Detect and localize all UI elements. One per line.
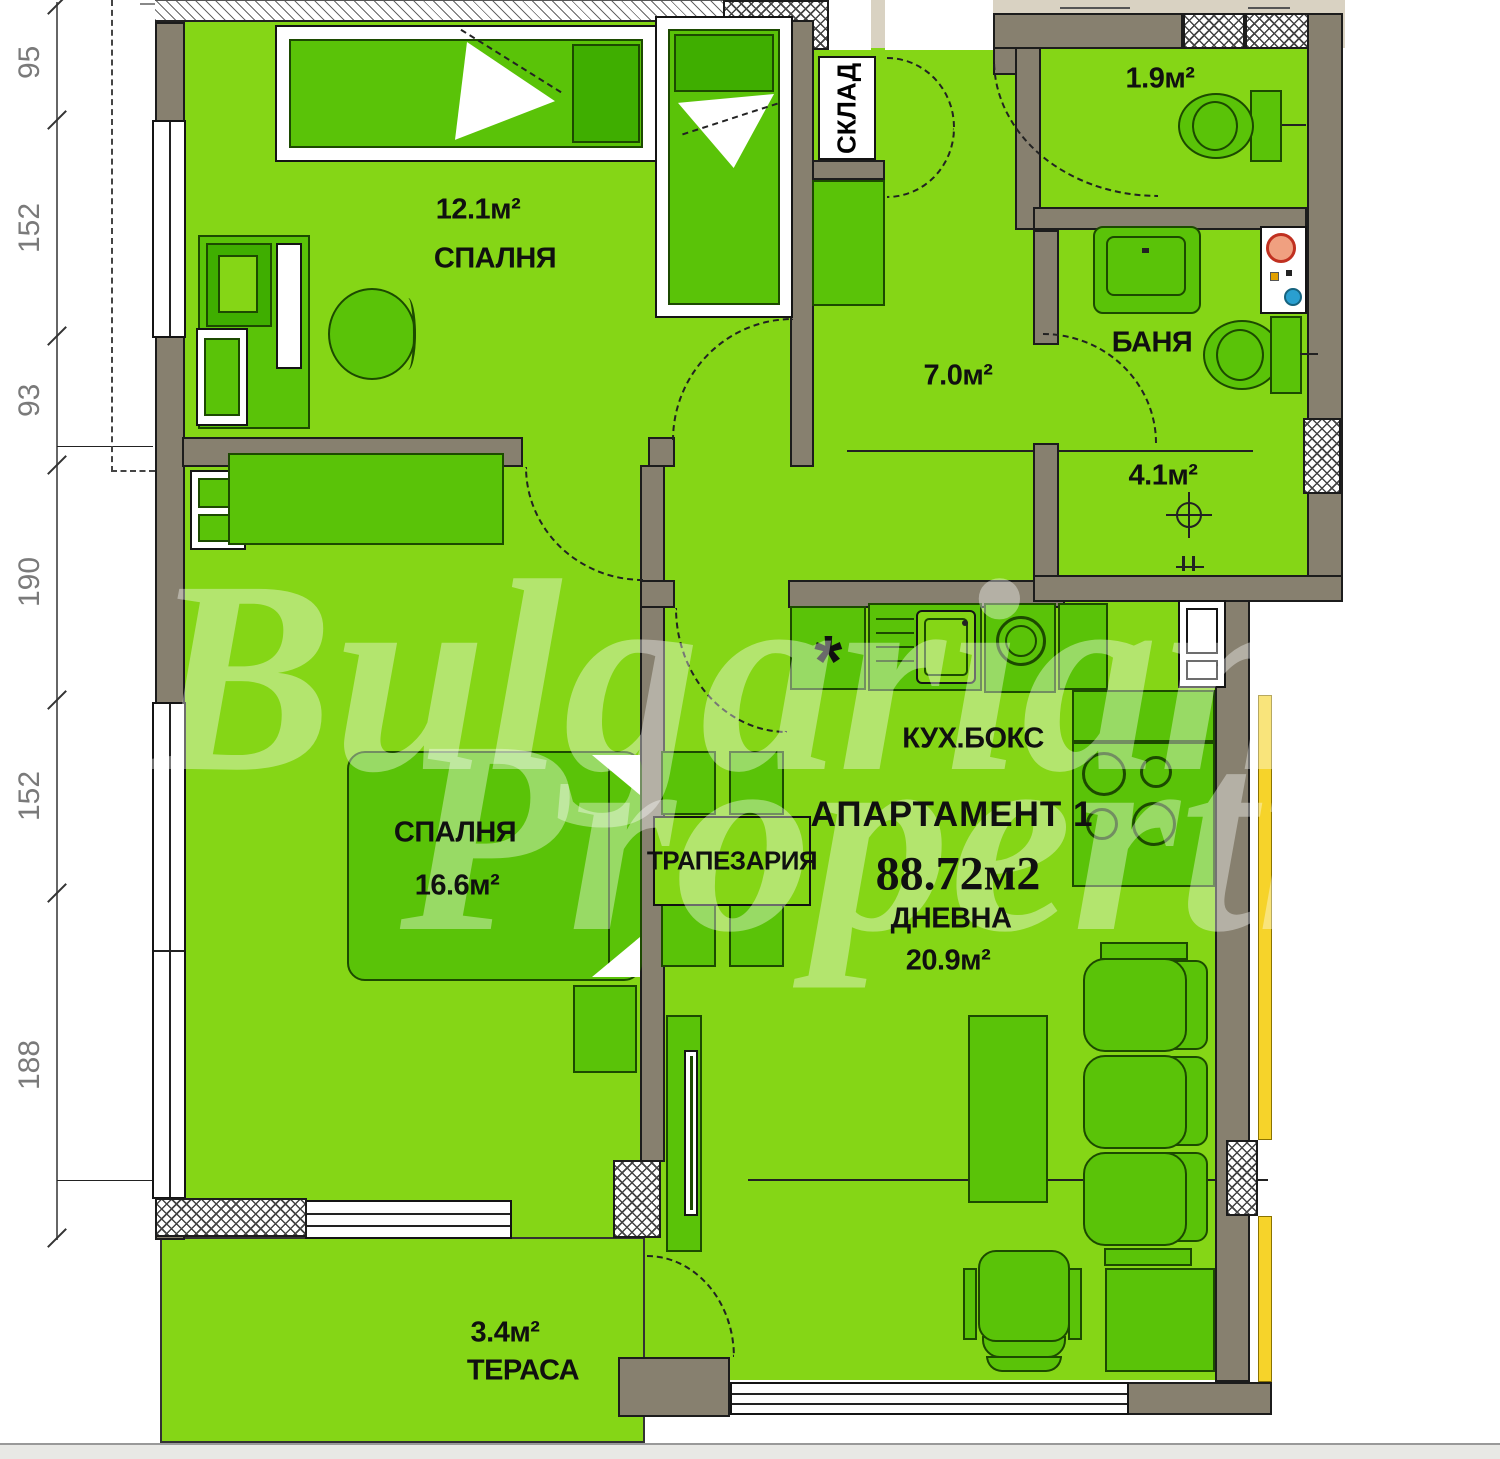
- armchair-arm: [1068, 1268, 1082, 1340]
- counter-line: [876, 618, 914, 620]
- bedroom1-area-label: 12.1м²: [436, 194, 521, 227]
- drain-mark: [1192, 556, 1195, 571]
- desk-keyboard: [276, 243, 302, 369]
- wall-living-right: [1215, 600, 1250, 1382]
- sofa-cushion: [1083, 958, 1187, 1052]
- boundary-dashed-line: [111, 0, 113, 472]
- floor-plan: 95 152 93 190 152 188: [0, 0, 1500, 1459]
- wall-block-hatched: [1183, 13, 1245, 49]
- drain-mark-h: [1176, 566, 1204, 568]
- burner: [1082, 752, 1126, 796]
- wall-block-hatched: [155, 1198, 307, 1237]
- double-bed: [347, 751, 642, 981]
- dimension-line-vertical: [56, 2, 58, 1240]
- armchair-cushion: [978, 1250, 1070, 1342]
- storage-label-box: СКЛАД: [818, 56, 876, 160]
- cooktop-symbol: *: [814, 621, 842, 703]
- terrace-area-label: 3.4м²: [471, 1317, 540, 1350]
- living-name-label: ДНЕВНА: [891, 903, 1012, 936]
- nightstand: [573, 985, 637, 1073]
- sink-basin: [924, 618, 968, 676]
- apartment-title: АПАРТАМЕНТ 1: [811, 795, 1094, 835]
- wall-bath-bottom: [1033, 575, 1343, 602]
- toilet-bowl-inner: [1192, 101, 1238, 151]
- dining-chair: [661, 751, 716, 815]
- window-bedroom1: [152, 120, 186, 338]
- dimension-extension-line: [57, 446, 153, 447]
- sofa-cushion: [1083, 1152, 1187, 1246]
- wall-living-bottom-right: [1127, 1382, 1272, 1415]
- insulation-strip: [1258, 1216, 1272, 1382]
- wc-area-label: 1.9м²: [1126, 63, 1195, 96]
- white-gap: [829, 0, 871, 50]
- drain-mark: [1182, 556, 1185, 571]
- boundary-dashed-elbow: [111, 470, 155, 472]
- wall-door-stub: [648, 437, 675, 467]
- dimension-label: 152: [12, 736, 48, 856]
- sink-dot: [962, 620, 968, 626]
- floor-terrace: [160, 1237, 645, 1443]
- dining-chair: [729, 751, 784, 815]
- wall-storage-left: [790, 20, 814, 467]
- living-area-label: 20.9м²: [906, 945, 991, 978]
- chair-back: [400, 298, 416, 370]
- window-living-bottom: [730, 1382, 1129, 1415]
- wall-storage-divider: [812, 160, 885, 180]
- armchair-back: [986, 1356, 1062, 1372]
- wall-living-bottom-left: [618, 1357, 730, 1417]
- page-bottom-strip: [0, 1443, 1500, 1459]
- dimension-label: 93: [12, 345, 48, 455]
- bedroom2-name-label: СПАЛНЯ: [394, 817, 516, 850]
- window-terrace: [305, 1200, 512, 1239]
- armchair-arm: [963, 1268, 977, 1340]
- washer-drum-inner: [1005, 625, 1037, 657]
- dining-chair: [729, 903, 784, 967]
- dimension-label: 152: [12, 168, 48, 288]
- hall-wardrobe: [812, 180, 885, 306]
- counter-line: [876, 646, 914, 648]
- bathroom-name-label: БАНЯ: [1112, 327, 1192, 360]
- toilet-pipe: [1282, 124, 1306, 126]
- coffee-table: [968, 1015, 1048, 1203]
- drain-cross-v: [1188, 492, 1190, 538]
- window-bedroom2: [152, 702, 186, 1199]
- bedroom2-area-label: 16.6м²: [415, 870, 500, 903]
- dining-chair: [661, 903, 716, 967]
- sofa-armrest: [1104, 1248, 1192, 1266]
- burner: [1132, 802, 1176, 846]
- burner: [1140, 756, 1172, 788]
- bed-pillow: [572, 44, 640, 143]
- bed-headboard-line: [608, 755, 610, 977]
- wall-left-mid: [155, 336, 185, 704]
- fridge-door: [1186, 608, 1218, 654]
- wall-entry-top: [993, 13, 1183, 49]
- dimension-extension-line: [57, 1180, 157, 1181]
- counter-line: [876, 660, 914, 662]
- bath-sink-basin: [1106, 236, 1186, 296]
- corner-cabinet: [1058, 603, 1108, 690]
- wall-block-hatched: [1303, 418, 1341, 494]
- dimension-label: 190: [12, 522, 48, 642]
- boiler-dial-blue: [1284, 288, 1302, 306]
- terrace-name-label: ТЕРАСА: [467, 1355, 579, 1388]
- wall-top-hatched: [155, 0, 723, 22]
- wardrobe: [228, 453, 504, 545]
- side-table: [1105, 1268, 1215, 1372]
- dimension-label: 95: [12, 12, 48, 112]
- insulation-strip: [1258, 695, 1272, 1140]
- bedroom1-name-label: СПАЛНЯ: [434, 243, 556, 276]
- sink-drain-dot: [1142, 248, 1149, 253]
- corridor-detail-line: [1248, 7, 1290, 9]
- dining-name-label: ТРАПЕЗАРИЯ: [647, 846, 817, 877]
- sofa-cushion: [1083, 1055, 1187, 1149]
- boiler-dial-red: [1266, 233, 1296, 263]
- tv-screen-line: [690, 1056, 693, 1210]
- desk-cabinet-door: [204, 338, 240, 416]
- storage-label: СКЛАД: [832, 62, 863, 153]
- counter-line: [876, 632, 914, 634]
- wall-block-hatched: [1226, 1140, 1258, 1216]
- bath-toilet-inner: [1216, 329, 1264, 381]
- bed-pillow: [674, 34, 774, 92]
- counter-return: [1072, 690, 1215, 742]
- bathroom-area-label: 4.1м²: [1129, 460, 1198, 493]
- wall-bath-left-b: [1033, 443, 1059, 578]
- bath-toilet-tank: [1270, 316, 1302, 394]
- dimension-label: 188: [12, 1005, 48, 1125]
- monitor-screen: [218, 255, 258, 313]
- toilet-tank: [1250, 90, 1282, 162]
- wall-bath-left-a: [1033, 230, 1059, 345]
- apartment-total-area: 88.72м2: [876, 847, 1041, 902]
- fridge-drawer: [1186, 660, 1218, 680]
- kitchen-name-label: КУХ.БОКС: [902, 723, 1044, 756]
- bath-toilet-pipe: [1300, 353, 1318, 355]
- wall-block-hatched: [613, 1160, 661, 1238]
- entry-threshold: [885, 0, 993, 50]
- hall-area-label: 7.0м²: [924, 360, 993, 393]
- boiler-knob-small: [1286, 270, 1292, 276]
- corridor-detail-line: [1060, 7, 1130, 9]
- boiler-knob: [1270, 272, 1279, 281]
- wall-left-top: [155, 22, 185, 122]
- wall-kitchen-left: [640, 580, 675, 608]
